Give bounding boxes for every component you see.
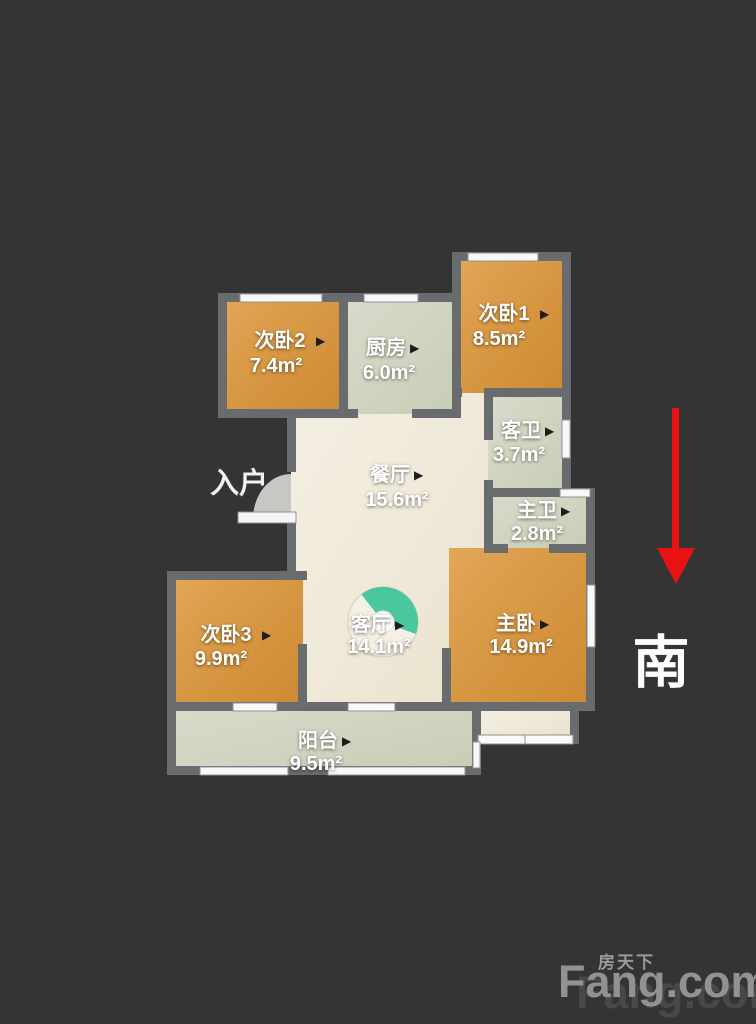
room-name: 客卫 bbox=[500, 418, 541, 442]
wall-segment bbox=[287, 519, 296, 580]
window bbox=[200, 767, 288, 775]
room-link-arrow-icon: ▶ bbox=[316, 334, 326, 348]
window bbox=[468, 253, 538, 261]
room-name: 餐厅 bbox=[370, 462, 410, 486]
window bbox=[473, 742, 480, 768]
guest-bath-floor bbox=[488, 392, 567, 493]
room-area: 9.5m² bbox=[290, 753, 343, 775]
room-name: 次卧2 bbox=[254, 328, 305, 352]
window bbox=[364, 294, 418, 302]
wall-segment bbox=[484, 388, 493, 440]
room-area: 3.7m² bbox=[493, 444, 546, 466]
window bbox=[562, 420, 570, 458]
window bbox=[587, 585, 595, 647]
room-link-arrow-icon: ▶ bbox=[561, 504, 571, 518]
room-area: 2.8m² bbox=[511, 523, 564, 545]
room-name: 阳台 bbox=[298, 728, 338, 752]
wall-segment bbox=[442, 648, 451, 711]
room-area: 15.6m² bbox=[365, 489, 429, 511]
wall-segment bbox=[562, 252, 571, 497]
wall-segment bbox=[452, 252, 461, 418]
watermark-logo: Fang.com 房天下 Fang.com bbox=[558, 952, 756, 1018]
window bbox=[328, 767, 465, 775]
wall-segment bbox=[484, 480, 493, 553]
room-area: 7.4m² bbox=[250, 355, 303, 377]
room-link-arrow-icon: ▶ bbox=[545, 424, 555, 438]
south-arrow-head bbox=[657, 548, 695, 584]
room-area: 6.0m² bbox=[363, 362, 416, 384]
wall-segment bbox=[298, 644, 307, 702]
wall-segment bbox=[218, 409, 358, 418]
wall-segment bbox=[218, 293, 227, 418]
compass-south-label: 南 bbox=[633, 631, 690, 695]
room-area: 14.1m² bbox=[347, 636, 411, 658]
fang-logo: Fang.com bbox=[558, 956, 756, 1007]
room-link-arrow-icon: ▶ bbox=[410, 341, 420, 355]
wall-segment bbox=[492, 388, 571, 397]
wall-segment bbox=[167, 571, 307, 580]
window bbox=[348, 703, 395, 711]
room-name: 主卧 bbox=[496, 611, 536, 635]
wall-segment bbox=[287, 418, 296, 472]
room-link-arrow-icon: ▶ bbox=[540, 617, 550, 631]
door-leaf bbox=[238, 512, 296, 523]
room-area: 14.9m² bbox=[489, 636, 553, 658]
window bbox=[233, 703, 277, 711]
window bbox=[240, 294, 322, 302]
floor-plan-svg: 次卧1 ▶ 8.5m² 次卧2 ▶ 7.4m² 厨房 ▶ 6.0m² 客卫 ▶ … bbox=[0, 0, 756, 1024]
floorplan-screenshot: 次卧1 ▶ 8.5m² 次卧2 ▶ 7.4m² 厨房 ▶ 6.0m² 客卫 ▶ … bbox=[0, 0, 756, 1024]
entrance-label: 入户 bbox=[210, 466, 268, 500]
room-link-arrow-icon: ▶ bbox=[395, 618, 405, 632]
room-link-arrow-icon: ▶ bbox=[262, 628, 272, 642]
south-arrow-shaft bbox=[672, 408, 679, 550]
room-area: 9.9m² bbox=[195, 648, 248, 670]
room-area: 8.5m² bbox=[473, 328, 526, 350]
window bbox=[560, 489, 590, 497]
compass: 南 bbox=[633, 408, 696, 695]
room-name: 厨房 bbox=[366, 335, 406, 359]
room-name: 客厅 bbox=[350, 612, 391, 636]
room-name: 次卧3 bbox=[200, 622, 251, 646]
room-link-arrow-icon: ▶ bbox=[540, 307, 550, 321]
room-name: 次卧1 bbox=[478, 301, 529, 325]
bay-floor bbox=[481, 708, 570, 735]
room-link-arrow-icon: ▶ bbox=[414, 468, 424, 482]
wall-segment bbox=[339, 293, 348, 418]
room-link-arrow-icon: ▶ bbox=[342, 734, 352, 748]
room-name: 主卫 bbox=[517, 498, 557, 522]
wall-segment bbox=[167, 571, 176, 775]
